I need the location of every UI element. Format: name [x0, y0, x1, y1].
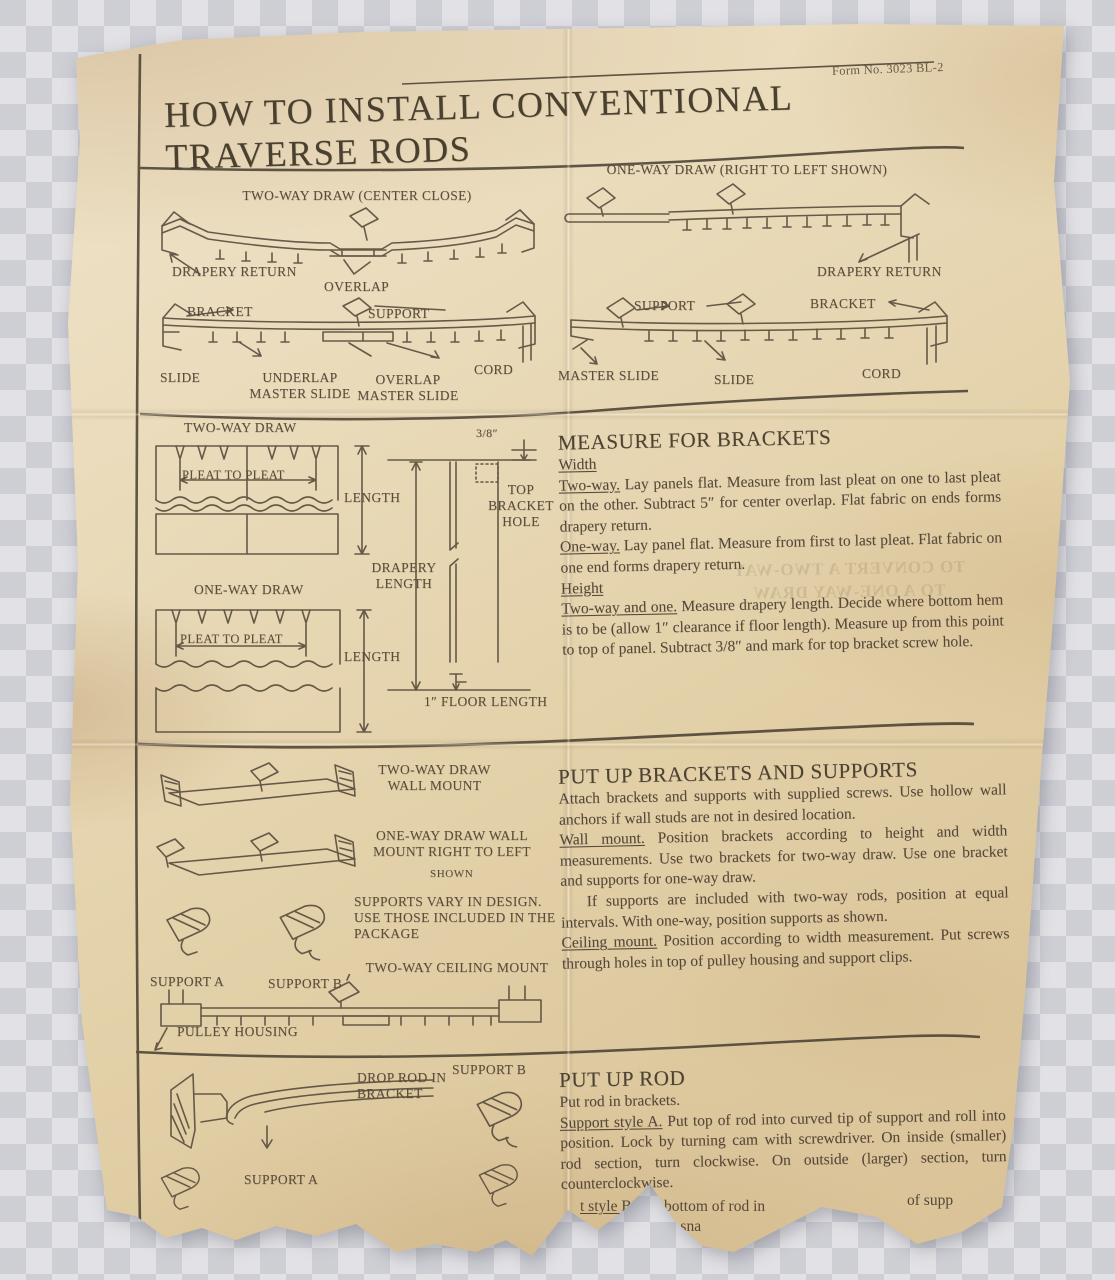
three-eighths-label: 3/8″ — [476, 426, 498, 440]
style-b-fragment-right: of supp — [907, 1192, 953, 1210]
height-paragraph: Two-way and one. Measure drapery length.… — [561, 591, 1004, 662]
wall-mount-paragraph: Wall mount. Position brackets according … — [559, 822, 1008, 893]
slide-label-left: SLIDE — [160, 370, 200, 386]
cord-label-right: CORD — [862, 366, 901, 382]
instruction-sheet: TO CONVERT A TWO-WAYTO A ONE-WAY DRAW Fo… — [62, 22, 1074, 1278]
one-way-wall-mount-diagram — [147, 829, 372, 897]
ceiling-mount-diagram — [147, 974, 559, 1054]
support-b-label-bottom: SUPPORT B — [452, 1062, 526, 1078]
floor-length-label: 1″ FLOOR LENGTH — [424, 694, 547, 710]
support-b-diagram-bottom — [465, 1088, 533, 1152]
style-b-fragment-2: d until it sna — [624, 1218, 701, 1236]
underlap-master-slide-label: UNDERLAP MASTER SLIDE — [240, 370, 360, 402]
support-diagram-bottom-right — [465, 1161, 531, 1216]
one-way-wall-mount-label: ONE-WAY DRAW WALL MOUNT RIGHT TO LEFT — [352, 828, 552, 860]
photo-of-instruction-sheet: { "header": { "form_no": "Form No. 3023 … — [0, 0, 1115, 1280]
bracket-label-left: BRACKET — [187, 304, 253, 320]
style-b-fragment-3: ction — [650, 1236, 681, 1254]
style-b-fragment: t style B. Put bottom of rod in — [580, 1198, 765, 1216]
support-label-left: SUPPORT — [368, 306, 429, 322]
support-a-diagram-bottom-left — [150, 1164, 210, 1219]
one-way-draw-title: ONE-WAY DRAW (RIGHT TO LEFT SHOWN) — [582, 162, 912, 178]
overlap-label: OVERLAP — [324, 279, 389, 295]
measure-one-way-label: ONE-WAY DRAW — [194, 582, 304, 598]
drapery-return-label-right: DRAPERY RETURN — [817, 264, 942, 280]
style-a-paragraph: Support style A. Put top of rod into cur… — [560, 1106, 1007, 1196]
master-slide-label: MASTER SLIDE — [558, 368, 659, 384]
support-label-right: SUPPORT — [634, 298, 695, 314]
two-way-wall-mount-diagram — [147, 759, 372, 827]
pulley-housing-label: PULLEY HOUSING — [177, 1024, 298, 1040]
pleat-to-pleat-label-1: PLEAT TO PLEAT — [182, 468, 285, 483]
support-a-diagram — [157, 904, 219, 966]
cord-label-left: CORD — [474, 362, 513, 378]
paper: TO CONVERT A TWO-WAYTO A ONE-WAY DRAW Fo… — [62, 22, 1074, 1272]
width-two-way-paragraph: Two-way. Lay panels flat. Measure from l… — [559, 467, 1002, 538]
rod-text-column: PUT UP ROD Put rod in brackets. Support … — [559, 1060, 1007, 1196]
drapery-return-label-left: DRAPERY RETURN — [172, 264, 297, 280]
two-way-draw-title: TWO-WAY DRAW (CENTER CLOSE) — [212, 188, 502, 204]
pleat-to-pleat-label-2: PLEAT TO PLEAT — [180, 632, 283, 647]
one-way-rod-diagram — [557, 178, 957, 270]
two-way-wall-mount-label: TWO-WAY DRAW WALL MOUNT — [372, 762, 497, 794]
measure-two-way-label: TWO-WAY DRAW — [184, 420, 297, 436]
brackets-text-column: PUT UP BRACKETS AND SUPPORTS Attach brac… — [558, 755, 1010, 975]
measure-text-column: MEASURE FOR BRACKETS Width Two-way. Lay … — [558, 421, 1005, 661]
overlap-master-slide-label: OVERLAP MASTER SLIDE — [352, 372, 464, 404]
one-way-pleat-diagram — [150, 600, 385, 740]
top-bracket-hole-label: TOP BRACKET HOLE — [482, 482, 560, 530]
bracket-label-right: BRACKET — [810, 296, 876, 312]
support-a-label-bottom: SUPPORT A — [244, 1172, 318, 1188]
support-b-diagram — [270, 900, 334, 966]
shown-label: SHOWN — [430, 868, 473, 881]
drapery-length-label: DRAPERY LENGTH — [364, 560, 444, 592]
slide-label-right: SLIDE — [714, 372, 754, 388]
supports-vary-note: SUPPORTS VARY IN DESIGN. USE THOSE INCLU… — [354, 894, 569, 942]
